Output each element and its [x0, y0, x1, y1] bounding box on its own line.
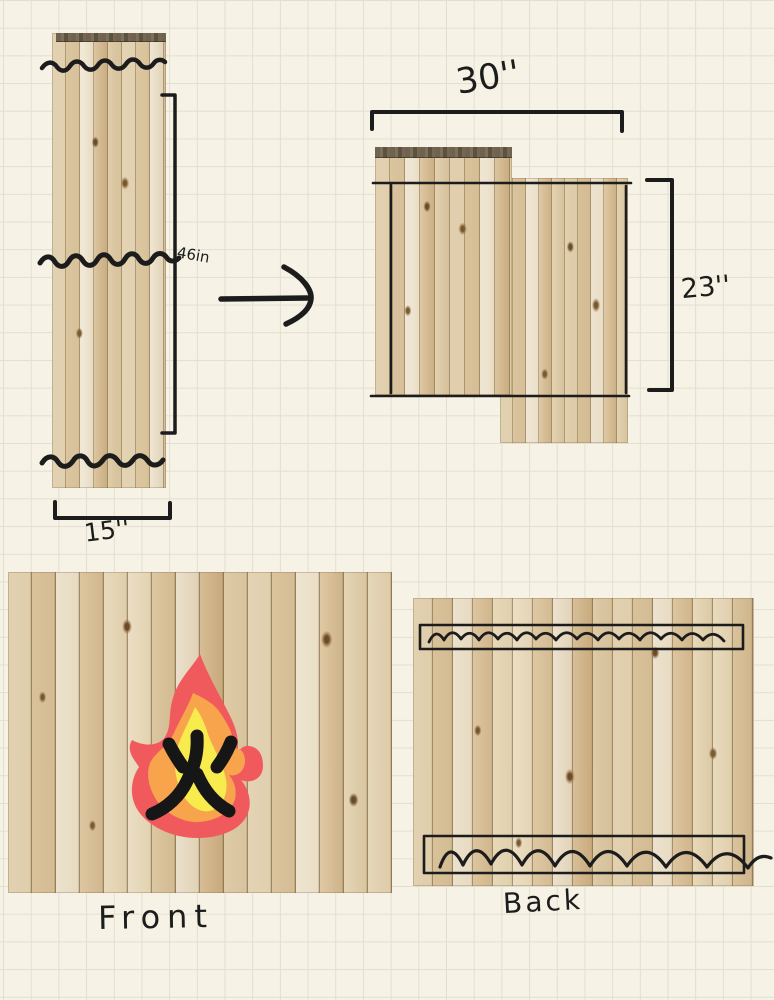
board-end-cap [375, 147, 512, 158]
width-bracket-30 [372, 112, 622, 131]
cut-board-left-piece [375, 147, 512, 395]
height-label-46: 46in [176, 243, 211, 266]
height-label-23: 23'' [680, 270, 732, 305]
board-end-cap [56, 33, 166, 42]
width-label-30: 30'' [453, 53, 522, 102]
stock-board-panel [52, 33, 166, 488]
back-panel-photo [413, 598, 754, 886]
width-label-15: 15'' [82, 513, 131, 547]
sketch-canvas: 30'' 23'' 46in 15'' Front Back [0, 0, 774, 1000]
cut-board-right-piece [500, 178, 628, 443]
arrow-right-head [284, 267, 311, 324]
height-bracket-23 [647, 180, 672, 390]
fire-flame-with-kanji-icon [127, 651, 264, 839]
front-caption: Front [98, 897, 215, 937]
back-caption: Back [502, 883, 584, 920]
arrow-right-icon [221, 298, 307, 299]
